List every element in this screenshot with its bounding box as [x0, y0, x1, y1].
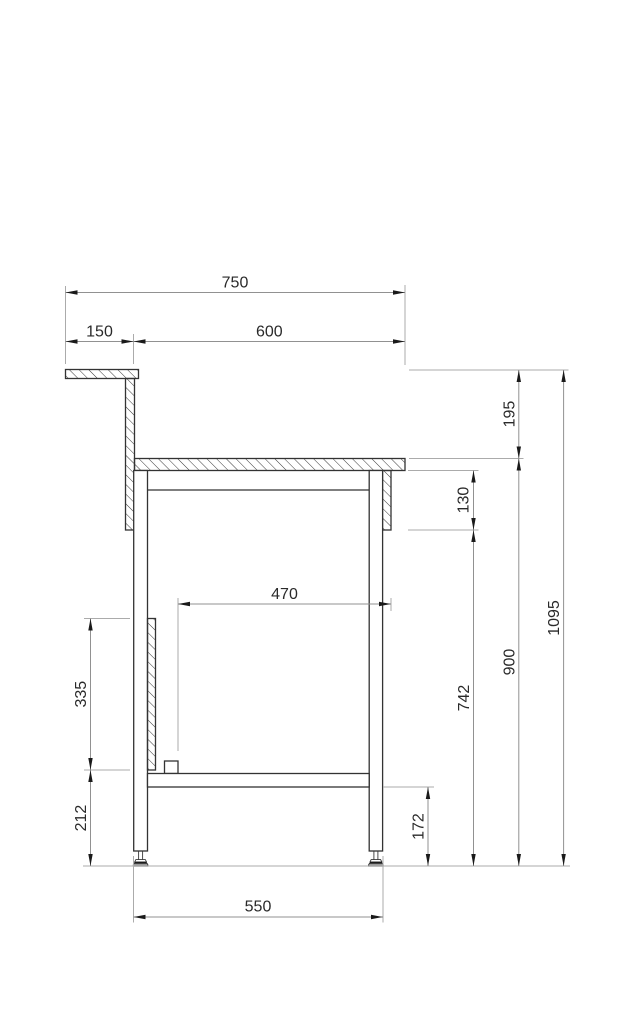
- svg-text:600: 600: [256, 324, 283, 341]
- svg-text:150: 150: [86, 324, 113, 341]
- svg-text:470: 470: [271, 586, 298, 603]
- svg-text:212: 212: [73, 805, 90, 832]
- svg-text:172: 172: [411, 813, 428, 840]
- svg-text:900: 900: [501, 649, 518, 676]
- svg-text:335: 335: [73, 681, 90, 708]
- svg-text:742: 742: [456, 685, 473, 712]
- svg-text:195: 195: [501, 401, 518, 428]
- svg-text:750: 750: [222, 275, 249, 292]
- svg-text:550: 550: [245, 899, 272, 916]
- svg-text:130: 130: [456, 487, 473, 514]
- svg-text:1095: 1095: [546, 600, 563, 636]
